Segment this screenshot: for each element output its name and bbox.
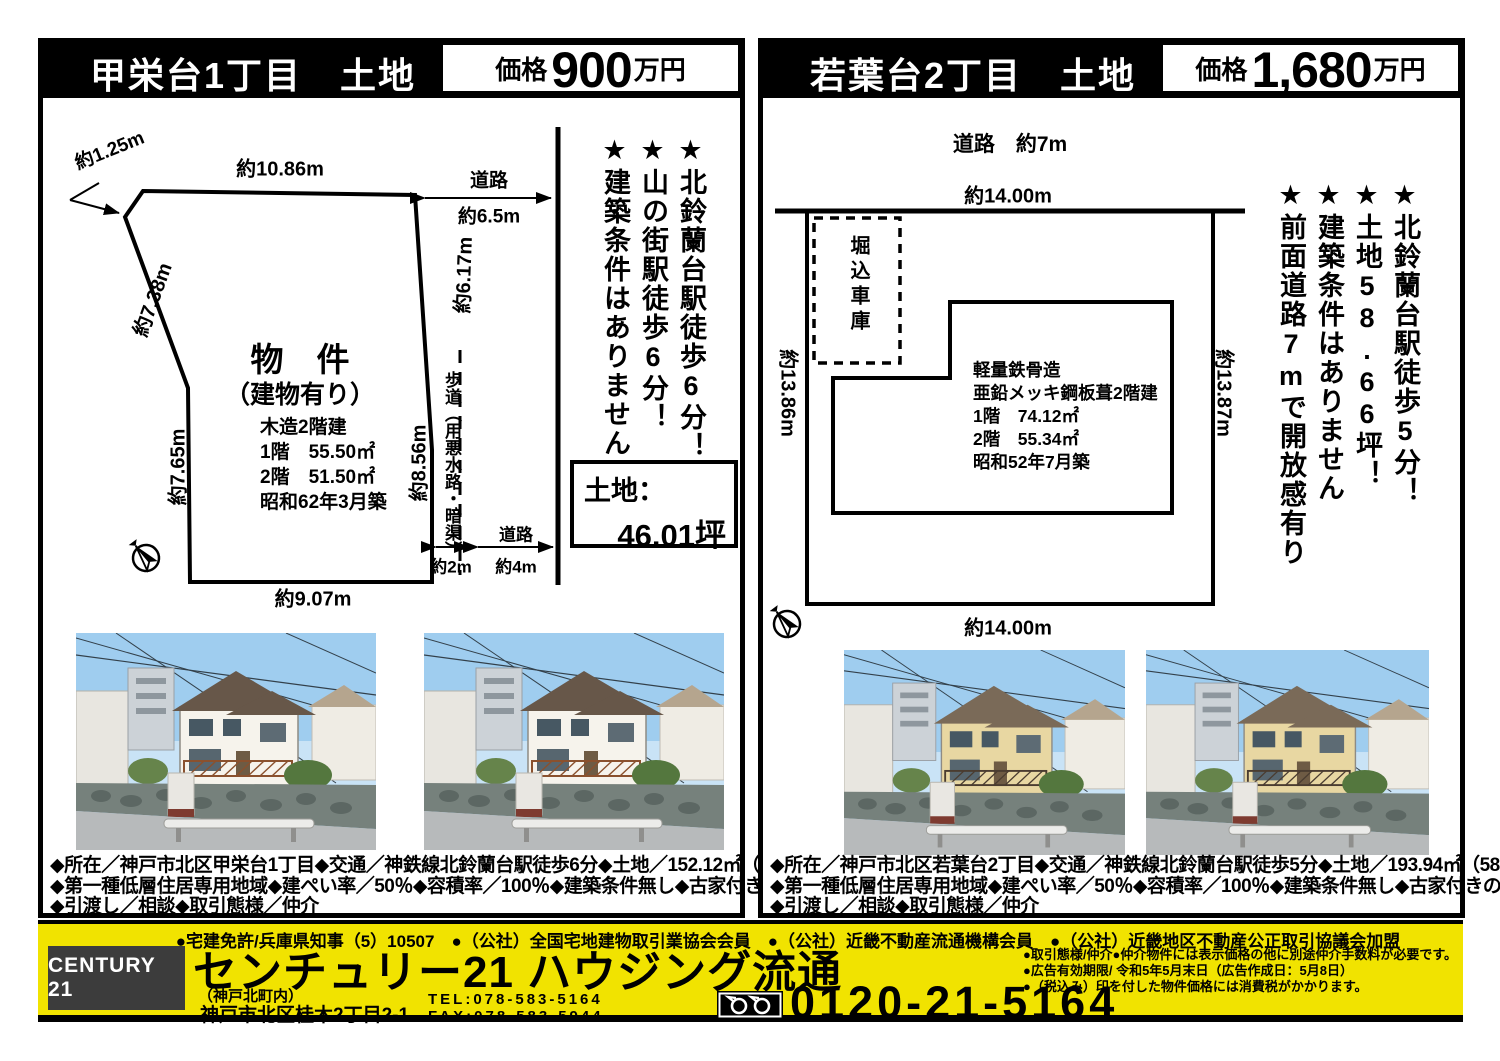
dim-top-width: 約10.86m: [236, 153, 324, 182]
tel-number: TEL:078-583-5164: [428, 991, 603, 1008]
house-photo-illustration: [76, 633, 376, 850]
price-value: 900: [551, 50, 631, 91]
price-box: 価格 1,680 万円: [1163, 45, 1458, 91]
property-photo: [844, 650, 1125, 855]
compass-icon: [764, 600, 806, 643]
property-title: 若葉台2丁目 土地: [810, 47, 1136, 99]
sidewalk-label: 歩道（用悪水路・暗渠）: [439, 371, 464, 558]
dim-top-width: 約14.00m: [964, 180, 1052, 209]
land-area-value: 46.01坪: [574, 510, 726, 555]
real-estate-flyer: 甲栄台1丁目 土地 価格 900 万円: [0, 0, 1500, 1061]
price-box: 価格 900 万円: [443, 45, 738, 91]
property-title: 甲栄台1丁目 土地: [90, 47, 416, 99]
fax-number: FAX:078-583-5944: [428, 1008, 604, 1025]
building-info: 軽量鉄骨造 亜鉛メッキ鋼板葺2階建 1階 74.12㎡ 2階 55.34㎡ 昭和…: [973, 359, 1158, 474]
road-bottom-width: 約4m: [495, 553, 537, 578]
highlight-item: ★建築条件はありません: [596, 135, 634, 515]
house-photo-illustration: [844, 650, 1125, 855]
company-address: 神戸市北区桂木2丁目2-1: [200, 1000, 409, 1027]
property-photo: [424, 633, 724, 850]
property-panel-koeidai: 甲栄台1丁目 土地 価格 900 万円: [38, 38, 745, 918]
property-details: ◆所在／神戸市北区若葉台2丁目◆交通／神鉄線北鈴蘭台駅徒歩5分◆土地／193.9…: [770, 856, 1500, 918]
dim-right-lower: 約8.56m: [403, 425, 432, 502]
road-right-label: 道路: [470, 166, 508, 193]
sidewalk-width: 約2m: [430, 553, 472, 578]
property-details: ◆所在／神戸市北区甲栄台1丁目◆交通／神鉄線北鈴蘭台駅徒歩6分◆土地／152.1…: [50, 856, 842, 918]
road-bottom-label: 道路: [499, 521, 533, 546]
road-top-label: 道路 約7m: [953, 128, 1067, 158]
price-label: 価格: [1195, 50, 1247, 87]
agency-footer: ●宅建免許/兵庫県知事（5）10507 ●（公社）全国宅地建物取引業協会会員 ●…: [38, 920, 1463, 1022]
dim-right-side: 約13.87m: [1212, 349, 1241, 437]
compass-icon: [123, 534, 165, 577]
price-unit: 万円: [634, 50, 686, 87]
dim-bottom-width: 約14.00m: [964, 612, 1052, 641]
dim-bottom-width: 約9.07m: [275, 583, 352, 612]
highlight-item: ★前面道路7mで開放感有り: [1272, 180, 1310, 570]
lot-subtitle: （建物有り）: [225, 375, 375, 411]
property-photo: [1146, 650, 1429, 855]
freedial-phone-icon: [717, 991, 783, 1019]
dim-left-lower: 約7.65m: [162, 429, 191, 506]
house-photo-illustration: [1146, 650, 1429, 855]
lot-title: 物 件: [251, 333, 350, 381]
property-photo: [76, 633, 376, 850]
footer-notes: ●取引態様/仲介●仲介物件には表示価格の他に別途仲介手数料が必要です。 ●広告有…: [1023, 947, 1463, 995]
highlights-vertical: ★北鈴蘭台駅徒歩5分！ ★土地58.66坪！ ★建築条件はありません ★前面道路…: [1272, 180, 1424, 570]
highlight-item: ★北鈴蘭台駅徒歩6分！: [672, 135, 710, 515]
dim-right-upper: 約6.17m: [446, 236, 478, 314]
price-value: 1,680: [1251, 50, 1371, 91]
house-photo-illustration: [424, 633, 724, 850]
highlight-item: ★北鈴蘭台駅徒歩5分！: [1386, 180, 1424, 570]
highlight-item: ★山の街駅徒歩6分！: [634, 135, 672, 515]
property-header: 若葉台2丁目 土地 価格 1,680 万円: [758, 38, 1465, 98]
highlight-item: ★土地58.66坪！: [1348, 180, 1386, 570]
century21-logo: CENTURY 21: [48, 946, 185, 1010]
price-unit: 万円: [1374, 50, 1426, 87]
property-panel-wakabadai: 若葉台2丁目 土地 価格 1,680 万円 道路 約7m: [758, 38, 1465, 918]
garage-label: 堀込車庫: [844, 235, 873, 335]
property-header: 甲栄台1丁目 土地 価格 900 万円: [38, 38, 745, 98]
highlight-item: ★建築条件はありません: [1310, 180, 1348, 570]
highlights-vertical: ★北鈴蘭台駅徒歩6分！ ★山の街駅徒歩6分！ ★建築条件はありません: [596, 135, 710, 515]
dim-left-side: 約13.86m: [776, 349, 805, 437]
price-label: 価格: [495, 50, 547, 87]
road-right-width: 約6.5m: [458, 202, 520, 229]
building-info: 木造2階建 1階 55.50㎡ 2階 51.50㎡ 昭和62年3月築: [260, 415, 387, 515]
